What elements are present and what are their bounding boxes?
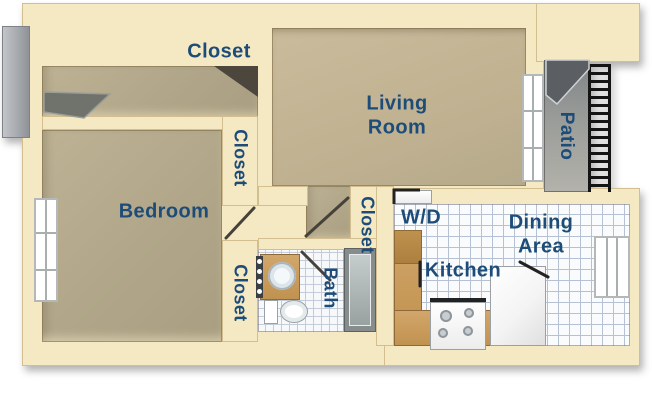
living-room-window	[522, 74, 544, 182]
label-dining-line1: Dining	[509, 211, 574, 235]
apartment-unit: Closet Closet Closet Closet Living Room …	[0, 0, 652, 416]
exterior-entry-panel	[2, 26, 30, 138]
hall-closet-floor	[306, 186, 352, 242]
dining-window	[594, 236, 630, 298]
toilet-tank	[264, 300, 278, 324]
bathroom-sink	[268, 262, 296, 290]
label-living-line1: Living	[366, 92, 427, 116]
label-kitchen: Kitchen	[425, 260, 501, 283]
stove-burner	[438, 328, 448, 338]
shower-pan	[349, 254, 371, 326]
label-closet-upper: Closet	[230, 129, 251, 186]
room-bedroom-floor	[42, 130, 222, 342]
label-closet-top: Closet	[187, 41, 251, 64]
kitchen-counter-upper	[394, 230, 422, 264]
stove-burner	[463, 326, 473, 336]
patio-railing	[588, 64, 611, 192]
label-living-line2: Room	[366, 116, 427, 140]
vanity-light	[257, 269, 262, 274]
living-south-wall	[258, 186, 308, 206]
floor-plan: Closet Closet Closet Closet Living Room …	[0, 0, 652, 416]
vanity-light	[257, 259, 262, 264]
stove	[430, 298, 486, 350]
label-bath: Bath	[320, 267, 341, 309]
washer-dryer-nook	[394, 190, 432, 204]
label-bedroom: Bedroom	[119, 201, 210, 224]
bath-kitchen-wall	[376, 186, 394, 346]
label-dining-line2: Area	[509, 235, 574, 259]
label-dining-area: Dining Area	[509, 211, 574, 258]
vanity-light	[257, 289, 262, 294]
stove-burner	[464, 308, 474, 318]
top-right-wall-block	[536, 3, 640, 62]
toilet	[280, 300, 308, 323]
label-patio: Patio	[555, 112, 577, 160]
label-closet-lower: Closet	[230, 264, 251, 321]
label-wd: W/D	[401, 207, 441, 230]
bedroom-window	[34, 198, 58, 302]
label-closet-hall: Closet	[357, 196, 378, 253]
label-living-room: Living Room	[366, 92, 427, 139]
stove-burner	[440, 310, 452, 322]
vanity-light	[257, 279, 262, 284]
entry-corridor-floor	[42, 66, 258, 118]
